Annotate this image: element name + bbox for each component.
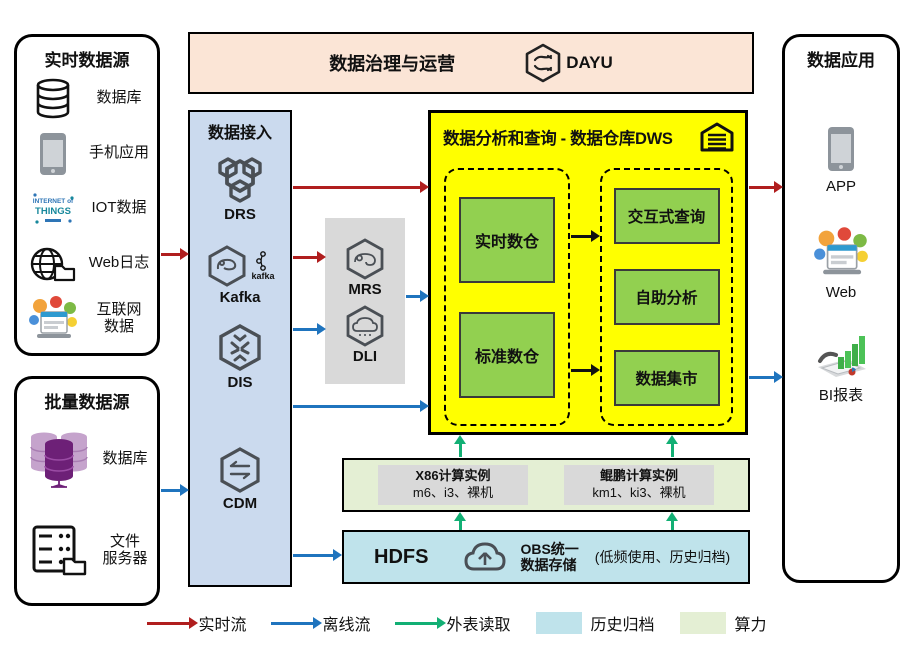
self-service-analysis-box: 自助分析 xyxy=(614,269,720,325)
arrow-mrs-to-dws xyxy=(406,295,420,298)
batch-database-icon xyxy=(27,428,91,490)
source-label: 互联网 数据 xyxy=(85,302,153,336)
web-log-icon xyxy=(27,245,79,283)
arrow-ingest-to-hdfs xyxy=(293,554,333,557)
iot-icon: INTERNET of THINGS xyxy=(27,189,79,229)
hdfs-label: HDFS xyxy=(374,546,428,569)
arrow-ingest-to-mrs xyxy=(293,256,317,259)
arrow-compute-to-dws-left xyxy=(459,444,462,457)
svg-text:INTERNET of: INTERNET of xyxy=(33,198,74,205)
source-label: 手机应用 xyxy=(85,145,153,162)
mrs-icon xyxy=(343,238,387,280)
kafka-logo-badge: kafka xyxy=(251,251,274,281)
data-ingestion-panel: 数据接入 DRS xyxy=(188,110,292,587)
kafka-badge-label: kafka xyxy=(251,271,274,281)
database-icon xyxy=(27,78,79,120)
dli-service: DLI xyxy=(343,305,387,364)
list-item-database: 数据库 xyxy=(17,71,157,126)
obs-cloud-icon xyxy=(462,539,508,575)
batch-sources-panel: 批量数据源 xyxy=(14,376,160,606)
governance-banner: 数据治理与运营 DAYU xyxy=(188,32,754,94)
realtime-sources-panel: 实时数据源 数据库 手机应用 xyxy=(14,34,160,356)
data-applications-panel: 数据应用 APP xyxy=(782,34,900,583)
list-item-mobile-app: 手机应用 xyxy=(17,126,157,181)
arrow-batch-to-ingest xyxy=(161,489,180,492)
kafka-label: Kafka xyxy=(220,290,261,305)
source-label: Web日志 xyxy=(85,255,153,272)
arrow-hdfs-to-compute-left xyxy=(459,521,462,530)
compute-power-swatch xyxy=(680,612,726,634)
realtime-sources-title: 实时数据源 xyxy=(45,46,130,71)
mrs-service: MRS xyxy=(343,238,387,297)
processing-panel: MRS DLI xyxy=(325,218,405,384)
data-applications-title: 数据应用 xyxy=(807,46,875,71)
drs-icon xyxy=(211,151,269,205)
kunpeng-instance-box: 鲲鹏计算实例 km1、ki3、裸机 xyxy=(564,465,714,505)
list-item-bi-report: BI报表 xyxy=(812,331,870,405)
arrow-ingest-to-dws-batch xyxy=(293,405,420,408)
dli-icon xyxy=(343,305,387,347)
realtime-warehouse-box: 实时数仓 xyxy=(459,197,555,283)
data-ingestion-title: 数据接入 xyxy=(208,119,272,143)
standard-warehouse-box: 标准数仓 xyxy=(459,312,555,398)
arrow-standard-to-mart xyxy=(571,369,591,372)
arrow-compute-to-dws-right xyxy=(671,444,674,457)
storage-bar: HDFS OBS统一 数据存储 (低频使用、历史归档) xyxy=(342,530,750,584)
legend-label: 算力 xyxy=(735,611,767,635)
svg-text:THINGS: THINGS xyxy=(35,206,71,217)
legend-label: 离线流 xyxy=(322,611,370,635)
source-label: 文件 服务器 xyxy=(97,534,153,568)
file-server-icon xyxy=(27,525,91,577)
governance-title: 数据治理与运营 xyxy=(329,50,455,76)
legend: 实时流 离线流 外表读取 历史归档 算力 xyxy=(0,611,914,635)
query-group: 交互式查询 自助分析 数据集市 xyxy=(600,168,733,426)
obs-storage-label: OBS统一 数据存储 xyxy=(520,541,578,573)
list-item-web-log: Web日志 xyxy=(17,236,157,291)
list-item-internet-data: 互联网 数据 xyxy=(17,291,157,346)
dis-icon xyxy=(215,323,265,373)
web-label: Web xyxy=(826,284,857,301)
warehouse-icon xyxy=(699,121,735,153)
offline-flow-arrow-icon xyxy=(271,622,313,625)
kafka-icon xyxy=(205,244,249,288)
legend-realtime-flow: 实时流 xyxy=(147,611,246,635)
dayu-group: DAYU xyxy=(525,43,613,83)
source-label: IOT数据 xyxy=(85,200,153,217)
legend-label: 实时流 xyxy=(198,611,246,635)
list-item-web: Web xyxy=(813,227,869,301)
realtime-flow-arrow-icon xyxy=(147,622,189,625)
dws-warehouse-panel: 数据分析和查询 - 数据仓库DWS 实时数仓 标准数仓 交互式查询 自助分析 数… xyxy=(428,110,748,435)
web-icon xyxy=(813,227,869,279)
architecture-diagram: 数据治理与运营 DAYU 实时数据源 数据库 xyxy=(0,0,914,651)
batch-sources-title: 批量数据源 xyxy=(45,388,130,413)
arrow-realtime-to-ingest xyxy=(161,253,180,256)
mrs-label: MRS xyxy=(348,282,381,297)
internet-data-icon xyxy=(27,296,79,342)
legend-label: 外表读取 xyxy=(446,611,510,635)
data-mart-box: 数据集市 xyxy=(614,350,720,406)
dli-label: DLI xyxy=(353,349,377,364)
dis-label: DIS xyxy=(227,375,252,390)
dayu-label: DAYU xyxy=(566,53,613,73)
storage-note: (低频使用、历史归档) xyxy=(595,547,730,567)
cdm-label: CDM xyxy=(223,496,257,511)
source-label: 数据库 xyxy=(97,451,153,468)
arrow-dws-to-apps-realtime xyxy=(749,186,774,189)
cdm-icon xyxy=(217,446,263,494)
bi-report-icon xyxy=(812,331,870,379)
dws-title: 数据分析和查询 - 数据仓库DWS xyxy=(443,121,673,149)
dayu-icon xyxy=(525,43,561,83)
external-read-arrow-icon xyxy=(395,622,437,625)
list-item-iot-data: INTERNET of THINGS IOT数据 xyxy=(17,181,157,236)
legend-offline-flow: 离线流 xyxy=(271,611,370,635)
warehouse-group: 实时数仓 标准数仓 xyxy=(444,168,570,426)
arrow-hdfs-to-compute-right xyxy=(671,521,674,530)
arrow-ingest-to-dli xyxy=(293,328,317,331)
legend-external-read: 外表读取 xyxy=(395,611,510,635)
drs-label: DRS xyxy=(224,207,256,222)
list-item-file-server: 文件 服务器 xyxy=(17,505,157,597)
arrow-realtime-to-interactive xyxy=(571,235,591,238)
arrow-ingest-to-dws-realtime xyxy=(293,186,420,189)
list-item-batch-database: 数据库 xyxy=(17,413,157,505)
compute-instances-bar: X86计算实例 m6、i3、裸机 鲲鹏计算实例 km1、ki3、裸机 xyxy=(342,458,750,512)
mobile-app-icon xyxy=(27,132,79,176)
kafka-icon-group: kafka xyxy=(205,244,274,288)
bi-report-label: BI报表 xyxy=(819,384,863,405)
x86-instance-box: X86计算实例 m6、i3、裸机 xyxy=(378,465,528,505)
legend-history-archive: 历史归档 xyxy=(536,611,655,635)
list-item-app: APP xyxy=(825,125,857,195)
source-label: 数据库 xyxy=(85,90,153,107)
legend-label: 历史归档 xyxy=(591,611,655,635)
interactive-query-box: 交互式查询 xyxy=(614,188,720,244)
arrow-dws-to-apps-offline xyxy=(749,376,774,379)
history-archive-swatch xyxy=(536,612,582,634)
app-icon xyxy=(825,125,857,173)
legend-compute-power: 算力 xyxy=(680,611,767,635)
app-label: APP xyxy=(826,178,856,195)
